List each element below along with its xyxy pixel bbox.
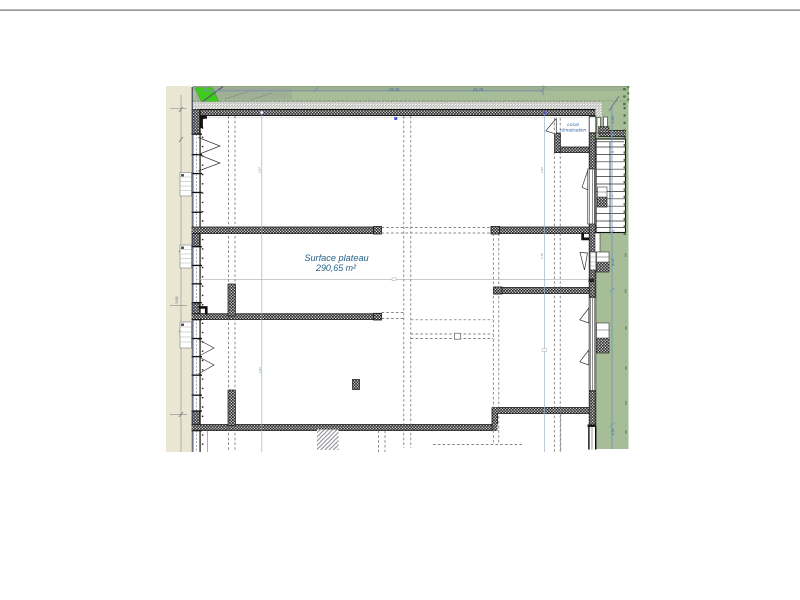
svg-text:2,97: 2,97 — [540, 167, 544, 173]
svg-text:15,25: 15,25 — [473, 87, 484, 92]
svg-text:9,85: 9,85 — [175, 297, 179, 304]
svg-text:2,97: 2,97 — [257, 167, 261, 173]
svg-text:15: 15 — [611, 150, 615, 154]
svg-text:29,43: 29,43 — [388, 87, 400, 92]
svg-text:290,65 m²: 290,65 m² — [315, 263, 357, 273]
svg-text:1,70: 1,70 — [540, 253, 544, 259]
svg-text:Local: Local — [567, 122, 579, 128]
svg-text:2,30: 2,30 — [611, 115, 615, 124]
svg-text:climatisation: climatisation — [560, 128, 587, 134]
svg-text:2,97: 2,97 — [258, 367, 262, 373]
svg-text:8,05: 8,05 — [611, 257, 615, 265]
svg-text:4,90: 4,90 — [611, 427, 615, 435]
svg-text:Surface plateau: Surface plateau — [304, 253, 368, 263]
